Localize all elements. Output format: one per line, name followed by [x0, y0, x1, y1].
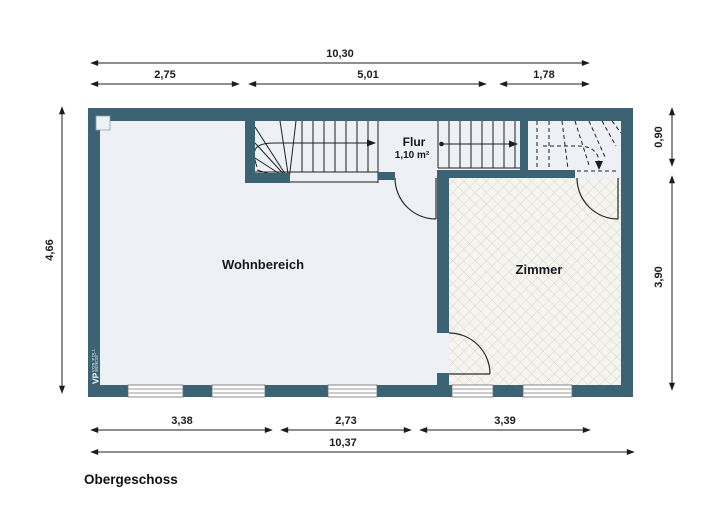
dim-label: 4,66 [44, 239, 56, 260]
logo-immobilien-text: IMMOBILIEN [96, 355, 99, 372]
room-area-flur: 1,10 m² [395, 150, 430, 161]
window-4 [452, 385, 493, 397]
window-5 [523, 385, 572, 397]
dim-label: 5,01 [357, 69, 378, 81]
logo-vonpoll-text: VON POLL [92, 348, 96, 372]
dim-label: 3,39 [494, 415, 515, 427]
dim-label: 10,30 [326, 48, 354, 60]
dim-label: 1,78 [533, 69, 554, 81]
window-2 [212, 385, 265, 397]
dim-label: 2,75 [154, 69, 175, 81]
dim-label: 3,38 [171, 415, 192, 427]
room-label-flur: Flur [403, 135, 426, 149]
window-1 [128, 385, 183, 397]
dimension-left-total: 4,66 [44, 107, 62, 393]
dimension-top-total: 10,30 [91, 48, 589, 63]
page-title: Obergeschoss [84, 472, 178, 487]
dimension-bottom-segments: 3,38 2,73 3,39 [91, 415, 590, 430]
zimmer-floor-hatched [449, 178, 621, 385]
dimension-top-segments: 2,75 5,01 1,78 [91, 69, 589, 84]
dim-label: 2,73 [335, 415, 356, 427]
floor-plan-page: VP VON POLL IMMOBILIEN Wohnbereich Zimme… [0, 0, 720, 509]
dimension-bottom-total: 10,37 [91, 437, 634, 452]
room-label-zimmer: Zimmer [516, 262, 563, 277]
dim-label: 3,90 [653, 266, 665, 287]
wall-niche [96, 116, 110, 130]
dim-label: 10,37 [329, 437, 357, 449]
dimension-right-segments: 0,90 3,90 [653, 108, 672, 390]
logo-vp-text: VP [91, 372, 101, 384]
floor-plan-drawing: VP VON POLL IMMOBILIEN Wohnbereich Zimme… [0, 0, 720, 509]
room-label-wohnbereich: Wohnbereich [222, 257, 304, 272]
dim-label: 0,90 [653, 126, 665, 147]
window-3 [328, 385, 377, 397]
